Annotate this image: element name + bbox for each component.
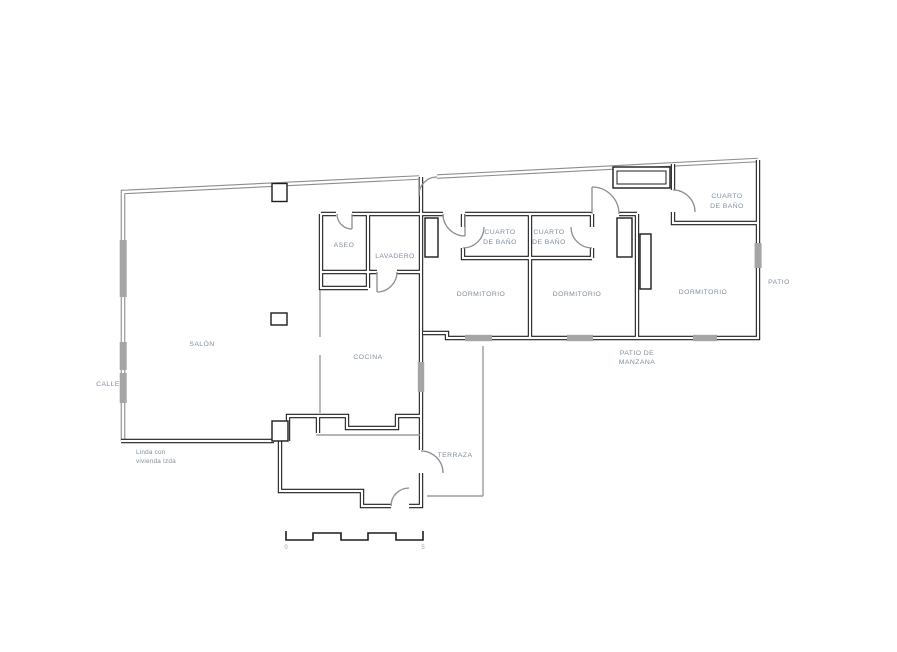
label-cocina: COCINA [353, 354, 382, 361]
window-street-2 [120, 342, 127, 370]
label-bano-2-line1: CUARTO [533, 229, 564, 236]
windows [120, 240, 762, 403]
doors [337, 177, 695, 506]
label-calle: CALLE [96, 381, 120, 388]
outer-walls [123, 160, 758, 441]
terraza-boundary [427, 346, 483, 496]
window-street-3 [120, 373, 127, 403]
label-aseo: ASEO [334, 242, 355, 249]
label-bano-3-line1: CUARTO [711, 193, 742, 200]
label-lavadero: LAVADERO [375, 253, 415, 260]
door-aseo [337, 214, 352, 229]
columns [271, 184, 288, 442]
label-bano-3-line2: DE BAÑO [710, 201, 744, 210]
label-bano-1-line2: DE BAÑO [483, 237, 517, 246]
scale-bar-line [286, 531, 423, 540]
thin-lines [316, 290, 483, 496]
label-salon: SALÓN [189, 339, 214, 348]
wardrobe-dormitorio-2 [617, 218, 632, 257]
label-bano-1-line1: CUARTO [484, 229, 515, 236]
door-lavadero [377, 272, 397, 292]
window-street-1 [120, 240, 127, 297]
door-bano-2 [571, 227, 592, 248]
outer-wall-left-top [123, 160, 758, 441]
label-patio: PATIO [768, 279, 790, 286]
label-boundary-note-line2: vivienda Izda [136, 458, 176, 465]
label-dormitorio-2: DORMITORIO [553, 291, 602, 298]
exterior-labels: CALLE PATIO PATIO DE MANZANA Linda con v… [96, 279, 790, 465]
label-boundary-note-line1: Linda con [136, 449, 166, 456]
scale-bar: 0 5 [284, 531, 425, 551]
column-top [272, 184, 287, 202]
door-bano-3 [673, 190, 695, 212]
scale-start-label: 0 [284, 545, 288, 551]
label-terraza: TERRAZA [438, 452, 473, 459]
label-patio-manzana-line2: MANZANA [619, 359, 655, 366]
window-dormitorio-1 [465, 335, 492, 341]
scale-end-label: 5 [421, 545, 425, 551]
wardrobe-dormitorio-3 [640, 234, 651, 289]
room-labels: SALÓN COCINA ASEO LAVADERO CUARTO DE BAÑ… [189, 193, 744, 459]
wardrobe-dormitorio-1 [425, 218, 438, 257]
label-patio-manzana-line1: PATIO DE [620, 350, 654, 357]
hall-closet-inner [617, 171, 666, 184]
door-corridor-nook [592, 187, 619, 214]
floor-plan-sheet: 0 5 SALÓN COCINA ASEO LAVADERO CUARTO DE… [0, 0, 897, 652]
outer-wall-left-top-core [123, 160, 758, 441]
door-bano-1 [463, 227, 484, 248]
wardrobes [425, 167, 670, 289]
label-dormitorio-3: DORMITORIO [679, 289, 728, 296]
label-dormitorio-1: DORMITORIO [457, 291, 506, 298]
window-cocina-terraza [418, 362, 424, 392]
window-patio [755, 243, 762, 268]
floor-plan-canvas: 0 5 SALÓN COCINA ASEO LAVADERO CUARTO DE… [0, 0, 897, 652]
window-dormitorio-2 [567, 335, 593, 341]
window-dormitorio-3 [693, 335, 717, 341]
label-bano-2-line2: DE BAÑO [532, 237, 566, 246]
column-bottom [272, 421, 288, 441]
door-rear [391, 488, 409, 506]
column-mid [271, 313, 287, 325]
